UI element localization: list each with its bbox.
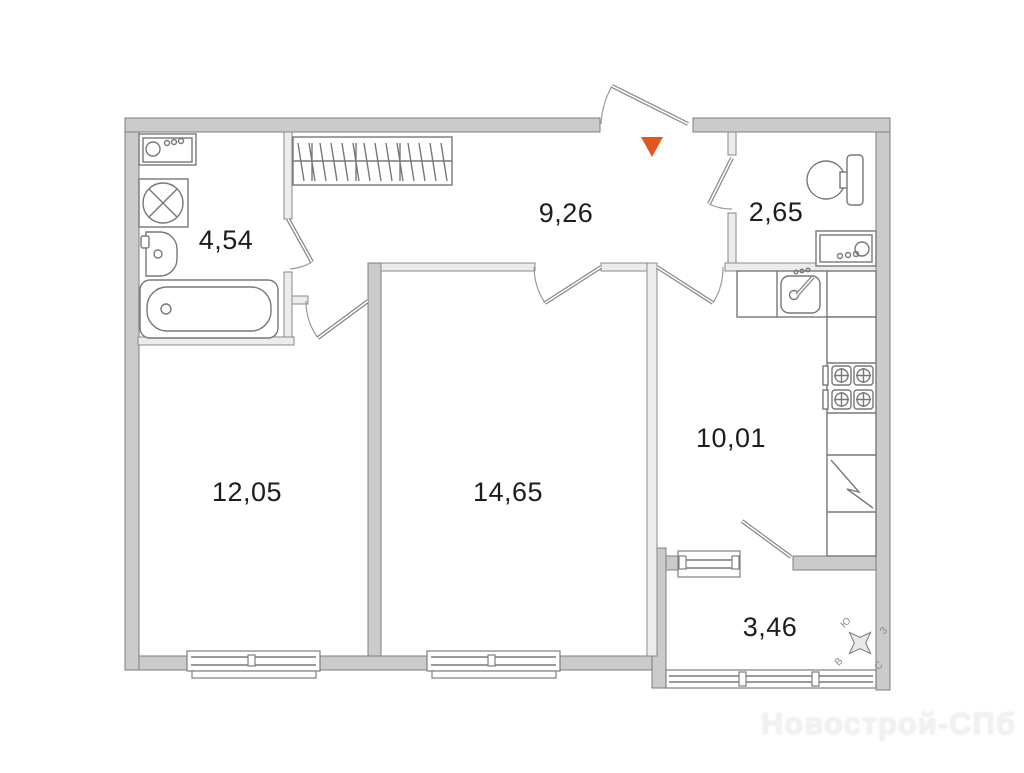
floor-plan: Ю З В С 4,54 9,26 2,65 10,01 12,05 14,65…: [0, 0, 1024, 768]
balcony-area-label: 3,46: [743, 612, 798, 642]
kitchen-area-label: 10,01: [696, 423, 766, 453]
bathroom-area-label: 4,54: [199, 225, 254, 255]
compass-south: Ю: [839, 616, 854, 631]
room-left-area-label: 12,05: [212, 477, 282, 507]
watermark: Новострой-СПб: [761, 706, 1016, 742]
entrance-door: [601, 86, 688, 124]
balcony-door: [742, 521, 791, 557]
kitchen-door: [657, 267, 723, 303]
entrance-marker-icon: [641, 137, 663, 157]
hallway-area-label: 9,26: [539, 198, 594, 228]
kitchen-balcony-window: [678, 551, 740, 577]
window-room-center: [427, 651, 560, 678]
toilet-area-label: 2,65: [749, 197, 804, 227]
toilet-door: [709, 158, 732, 209]
room-center-area-label: 14,65: [473, 477, 543, 507]
wardrobe-icon: [293, 137, 452, 185]
bathroom-sink-icon: [141, 232, 177, 276]
toilet-icon: [807, 155, 863, 205]
bathtub-icon: [140, 280, 278, 338]
compass-east: В: [833, 656, 846, 669]
balcony-glazing: [666, 670, 876, 688]
kitchen-counter: [737, 271, 876, 556]
bathroom-door: [288, 219, 312, 269]
room-center-door: [534, 267, 601, 303]
room-left-door: [306, 301, 368, 338]
window-room-left: [187, 651, 320, 678]
washer-circle-x-icon: [139, 179, 188, 227]
toilet-washing-machine-icon: [816, 231, 876, 266]
washing-machine-icon: [139, 134, 196, 165]
